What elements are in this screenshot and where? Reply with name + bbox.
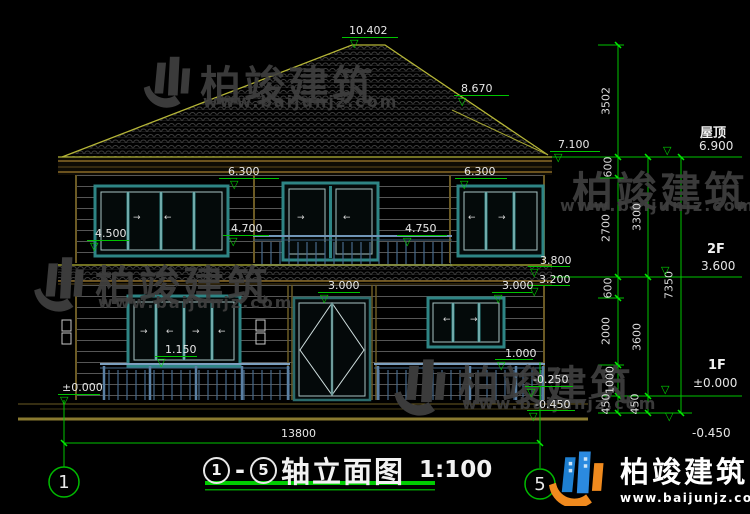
level-value-roof: 6.900 — [699, 139, 733, 153]
title-scale: 1:100 — [419, 457, 492, 483]
elevation-value: 3.000 — [328, 280, 360, 291]
dimension-value: 3502 — [601, 87, 612, 115]
elevation-value: 3.000 — [502, 280, 534, 291]
level-triangle-roof: ▽ — [663, 145, 671, 156]
brand-logo-icon — [540, 448, 616, 506]
dimension-value: 600 — [603, 157, 614, 178]
elevation-marker-triangle: ▽ — [350, 38, 358, 49]
elevation-marker-triangle: ▽ — [460, 179, 468, 190]
elevation-marker-triangle: ▽ — [60, 395, 68, 406]
axis-circle-to: 5 — [250, 457, 277, 484]
sliding-arrow-icon: ← — [443, 316, 451, 325]
elevation-marker-triangle: ▽ — [554, 152, 562, 163]
elevation-value: 7.100 — [558, 139, 590, 150]
elevation-marker-triangle: ▽ — [458, 96, 466, 107]
elevation-marker-line — [219, 178, 279, 179]
sliding-arrow-icon: → — [297, 214, 305, 223]
sliding-arrow-icon: ← — [166, 328, 174, 337]
elevation-value: 6.300 — [228, 166, 260, 177]
elevation-value: ±0.000 — [62, 382, 103, 393]
elevation-value: 8.670 — [461, 83, 493, 94]
elevation-value: 4.500 — [95, 228, 127, 239]
sliding-arrow-icon: ← — [218, 328, 226, 337]
elevation-marker-triangle: ▽ — [529, 411, 537, 422]
dimension-value: 450 — [630, 394, 641, 415]
elevation-marker-triangle: ▽ — [494, 293, 502, 304]
sliding-arrow-icon: ← — [164, 214, 172, 223]
elevation-marker-triangle: ▽ — [497, 360, 505, 371]
axis-bubble-1: 1 — [49, 467, 79, 497]
elevation-marker-triangle: ▽ — [90, 241, 98, 252]
level-value-1f: ±0.000 — [693, 376, 737, 390]
level-triangle-ground: ▽ — [665, 411, 673, 422]
annotation-layer: 10.402▽8.670▽7.100▽6.300▽6.300▽4.500▽4.7… — [0, 0, 750, 514]
level-value-ground: -0.450 — [692, 426, 731, 440]
elevation-value: 6.300 — [464, 166, 496, 177]
elevation-value: -0.450 — [535, 399, 570, 410]
axis-circle-from: 1 — [203, 457, 230, 484]
level-value-2f: 3.600 — [701, 259, 735, 273]
elevation-value: 4.700 — [231, 223, 263, 234]
dimension-value: 3600 — [632, 323, 643, 351]
dimension-value: 2000 — [601, 317, 612, 345]
dimension-value: 2700 — [601, 214, 612, 242]
sliding-arrow-icon: → — [133, 214, 141, 223]
elevation-value: 3.800 — [540, 255, 572, 266]
elevation-marker-triangle: ▽ — [320, 293, 328, 304]
overall-width-dim: 13800 — [281, 428, 316, 439]
level-label-2f: 2F — [707, 242, 725, 257]
sliding-arrow-icon: → — [192, 328, 200, 337]
title-dash: - — [235, 456, 245, 484]
elevation-value: 1.000 — [505, 348, 537, 359]
sliding-arrow-icon: ← — [468, 214, 476, 223]
dimension-value: 3300 — [632, 203, 643, 231]
level-label-1f: 1F — [708, 358, 726, 373]
elevation-value: -0.250 — [533, 374, 568, 385]
sliding-arrow-icon: ← — [343, 214, 351, 223]
elevation-marker-triangle: ▽ — [530, 267, 538, 278]
elevation-value: 3.200 — [539, 274, 571, 285]
sliding-arrow-icon: → — [498, 214, 506, 223]
sliding-arrow-icon: → — [140, 328, 148, 337]
title-text: 轴立面图 — [281, 449, 405, 491]
elevation-marker-triangle: ▽ — [527, 387, 535, 398]
level-triangle-2f: ▽ — [661, 265, 669, 276]
brand-logo-site: www.baijunjz.com — [620, 491, 750, 505]
dimension-value: 1000 — [605, 366, 616, 394]
level-triangle-1f: ▽ — [661, 384, 669, 395]
elevation-value: 4.750 — [405, 223, 437, 234]
elevation-value: 1.150 — [165, 344, 197, 355]
elevation-marker-triangle: ▽ — [230, 179, 238, 190]
elevation-marker-triangle: ▽ — [229, 236, 237, 247]
cad-canvas: 柏竣建筑 www.baijunjz.com 柏竣建筑 www.baijunjz.… — [0, 0, 750, 514]
elevation-marker-triangle: ▽ — [157, 357, 165, 368]
axis-number: 1 — [58, 472, 69, 493]
drawing-title: 1 - 5 轴立面图 1:100 — [203, 449, 492, 491]
elevation-value: 10.402 — [349, 25, 388, 36]
dimension-value: 450 — [601, 394, 612, 415]
elevation-marker-triangle: ▽ — [403, 236, 411, 247]
brand-logo: 柏竣建筑 www.baijunjz.com — [540, 448, 750, 506]
dimension-value: 600 — [603, 278, 614, 299]
brand-logo-name: 柏竣建筑 — [620, 449, 750, 491]
sliding-arrow-icon: → — [470, 316, 478, 325]
